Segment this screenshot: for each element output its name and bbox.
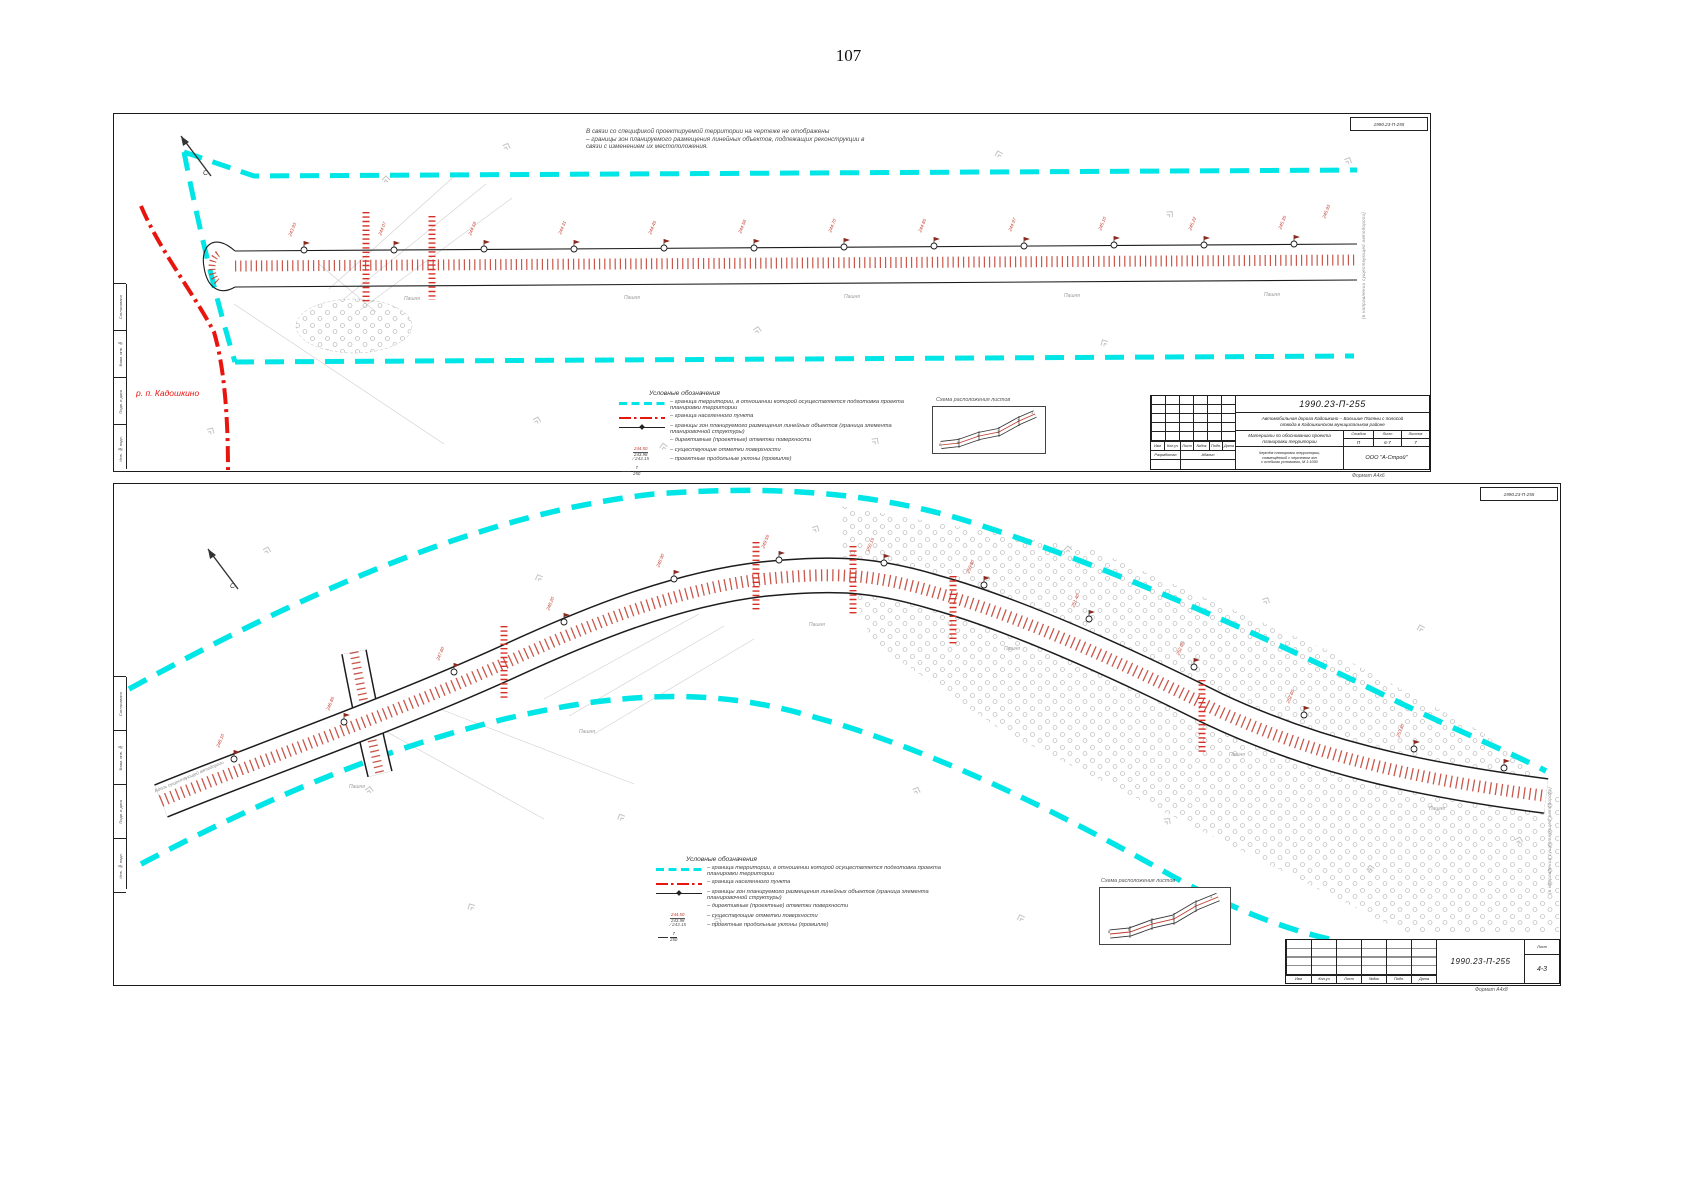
tb-role-empty — [1151, 459, 1180, 469]
settlement-boundary-line — [141, 206, 228, 470]
existing-features-lines — [234, 172, 512, 444]
direction-label-right: (в направлении существующей автодороги) — [1361, 209, 1366, 319]
road-corridor — [161, 542, 1546, 801]
tb-sheet-caption: Чертёж планировки территории, совмещённы… — [1235, 446, 1343, 469]
tb-project-name: Автомобильная дорога Кадошкино – Большие… — [1235, 412, 1429, 430]
legend-swatch-boundary — [619, 399, 665, 407]
title-block-sheet1: Изм Кол.уч Лист №док Подп. Дата Разработ… — [1150, 395, 1430, 470]
page-number: 107 — [0, 46, 1697, 66]
stamp-inv-replace: Взам. инв. № — [118, 341, 123, 367]
legend-item: 7250– проектные продольные уклоны (проми… — [656, 922, 986, 930]
tb-role-name: Абанин — [1180, 450, 1235, 459]
tb-col-koluch: Кол.уч — [1311, 975, 1336, 983]
elevation-label: 253.10 — [1395, 723, 1405, 738]
vegetation-area — [296, 299, 412, 353]
elevation-label: 244.97 — [1007, 217, 1017, 232]
legend-item: – границы зон планируемого размещения ли… — [656, 889, 986, 902]
tb-sheet-label: Лист — [1524, 940, 1559, 954]
station-markers — [301, 235, 1300, 253]
legend-swatch-settlement — [619, 413, 665, 421]
tb-organization: ООО "А-Строй" — [1343, 446, 1429, 469]
scheme-diagram — [933, 407, 1045, 453]
tb-doc-title: Материалы по обоснованию проекта планиро… — [1235, 430, 1343, 446]
legend-item: – граница населенного пункта — [619, 413, 949, 421]
tb-col-izm: Изм — [1286, 975, 1311, 983]
legend-sample-slope: 7250 — [670, 932, 677, 942]
elevation-label: 246.10 — [215, 733, 225, 748]
tb-col-data: Дата — [1222, 441, 1235, 450]
stamp-approved: Согласовано — [118, 295, 123, 319]
legend-title: Условные обозначения — [686, 856, 986, 863]
tb-role-label: Разработал — [1151, 450, 1180, 459]
elevation-label: 244.70 — [827, 218, 837, 233]
scheme-title: Схема расположения листов — [1101, 878, 1175, 884]
side-stamp-column: Согласовано Взам. инв. № Подп. и дата Ин… — [114, 284, 127, 469]
elevation-label: 252.60 — [1285, 689, 1295, 704]
legend-item: – границы зон планируемого размещения ли… — [619, 423, 949, 436]
legend-item: 7250– проектные продольные уклоны (проми… — [619, 456, 949, 464]
elevation-label: 244.45 — [647, 220, 657, 235]
elevation-label: 245.35 — [1277, 215, 1287, 230]
elevation-label: 244.18 — [467, 221, 477, 236]
settlement-label: р. п. Кадошкино — [136, 388, 199, 398]
format-label-sheet2: Формат А4х8 — [1475, 987, 1508, 993]
legend-swatch-linear — [619, 423, 665, 431]
elevation-label: 246.85 — [325, 696, 335, 711]
tb-col-list: Лист — [1180, 441, 1193, 450]
station-markers — [231, 551, 1510, 771]
elevation-label: 243.93 — [287, 222, 297, 237]
stamp-sign-date: Подп. и дата — [118, 390, 123, 414]
stamp-inv-replace: Взам. инв. № — [118, 745, 123, 771]
landuse-label: Пашня — [1004, 646, 1020, 652]
tb-col-ndok: №док — [1361, 975, 1386, 983]
tb-col-ndok: №док — [1193, 441, 1209, 450]
note-line: – границы зон планируемого размещения ли… — [586, 136, 926, 144]
elevation-label: 251.40 — [1070, 593, 1080, 608]
legend-swatch-settlement — [656, 879, 702, 887]
along-road-label: Вдоль существующей автодороги — [154, 760, 224, 794]
scheme-title: Схема расположения листов — [936, 397, 1010, 403]
format-label-sheet1: Формат А4х6 — [1352, 473, 1385, 479]
tb-col-podp: Подп. — [1386, 975, 1411, 983]
elevation-label: 244.31 — [557, 220, 567, 235]
corner-doc-number: 1990.23-П-255 — [1480, 487, 1558, 501]
landuse-label: Пашня — [1429, 806, 1445, 812]
legend-item: 244.50243.98– директивные (проектные) от… — [619, 437, 949, 445]
intersection-road — [354, 652, 380, 774]
legend-sheet1: Условные обозначения – граница территори… — [619, 390, 949, 466]
road-corridor — [203, 212, 1357, 304]
landuse-label: Пашня — [809, 622, 825, 628]
landuse-label: Пашня — [1229, 752, 1245, 758]
north-arrow: С — [196, 539, 248, 597]
drawing-sheet-1: С В связи со спецификой проектируемой те… — [113, 113, 1431, 472]
legend-swatch-boundary — [656, 865, 702, 873]
elevation-label: 249.55 — [760, 534, 770, 549]
legend-item: – граница территории, в отношении которо… — [656, 865, 986, 878]
legend-sample-slope: 7250 — [633, 466, 640, 476]
elevation-label: 244.07 — [377, 221, 387, 236]
legend-item: ⁄ 243.15– существующие отметки поверхнос… — [619, 447, 949, 455]
elevation-label: 248.90 — [655, 553, 665, 568]
landuse-label: Пашня — [579, 729, 595, 735]
existing-features-lines — [369, 614, 754, 819]
title-block-sheet2: Изм Кол.уч Лист №док Подп. Дата 1990.23-… — [1285, 939, 1560, 984]
drawing-sheet-2: С Вдоль существующей автодороги (в напра… — [113, 483, 1561, 986]
legend-swatch-linear — [656, 889, 702, 897]
scheme-box: 654321 — [932, 406, 1046, 454]
stamp-inv-orig: Инв. № подл. — [118, 436, 123, 462]
landuse-label: Пашня — [404, 296, 420, 302]
legend-item: – граница территории, в отношении которо… — [619, 399, 949, 412]
legend-item: – граница населенного пункта — [656, 879, 986, 887]
elevation-label: 250.15 — [865, 537, 875, 552]
project-boundary-line — [184, 152, 1357, 362]
tb-col-izm: Изм — [1151, 441, 1164, 450]
direction-label-right: (в направлении существующей автодороги) — [1547, 779, 1552, 894]
elevation-label: 245.10 — [1097, 216, 1107, 231]
tb-col-koluch: Кол.уч — [1164, 441, 1180, 450]
note-line: В связи со спецификой проектируемой терр… — [586, 128, 926, 136]
north-label: С — [230, 583, 235, 590]
landuse-label: Пашня — [844, 294, 860, 300]
elevation-label: 250.80 — [965, 559, 975, 574]
tb-sheet-value: 6-7 — [1373, 438, 1401, 446]
tb-stage-label: Стадия — [1343, 430, 1373, 438]
elevation-label: 244.58 — [737, 219, 747, 234]
note-line: связи с изменением их местоположения. — [586, 143, 926, 151]
north-label: С — [203, 170, 208, 177]
legend-sheet2: Условные обозначения – граница территори… — [656, 856, 986, 932]
elevation-label: 245.22 — [1187, 216, 1197, 231]
landuse-label: Пашня — [624, 295, 640, 301]
scheme-diagram — [1100, 888, 1230, 944]
legend-title: Условные обозначения — [649, 390, 949, 397]
north-arrow: С — [169, 126, 221, 184]
elevation-label: 252.05 — [1175, 641, 1185, 656]
stamp-inv-orig: Инв. № подл. — [118, 853, 123, 879]
tb-col-data: Дата — [1411, 975, 1436, 983]
scheme-box: 654321 — [1099, 887, 1231, 945]
elevation-label: 247.60 — [435, 646, 445, 661]
landuse-label: Пашня — [349, 784, 365, 790]
stamp-approved: Согласовано — [118, 692, 123, 716]
elevation-label: 248.20 — [545, 596, 555, 611]
tb-sheets-label: Листов — [1401, 430, 1429, 438]
tb-sheets-value: 7 — [1401, 438, 1429, 446]
tb-sheet-value: 4-3 — [1524, 954, 1559, 983]
corner-doc-number: 1990.23-П-255 — [1350, 117, 1428, 131]
stamp-sign-date: Подп. и дата — [118, 800, 123, 824]
landuse-label: Пашня — [1264, 292, 1280, 298]
legend-item: 244.50243.98– директивные (проектные) от… — [656, 903, 986, 911]
tb-col-podp: Подп. — [1209, 441, 1222, 450]
legend-item: ⁄ 243.15– существующие отметки поверхнос… — [656, 913, 986, 921]
tb-doc-number: 1990.23-П-255 — [1235, 396, 1429, 412]
tb-col-list: Лист — [1336, 975, 1361, 983]
document-page: { "page": {"number": "107"}, "colors": {… — [0, 0, 1697, 1200]
tb-doc-number: 1990.23-П-255 — [1436, 940, 1524, 983]
tb-role-empty2 — [1180, 459, 1235, 469]
side-stamp-column: Согласовано Взам. инв. № Подп. и дата Ин… — [114, 677, 127, 889]
elevation-label: 244.85 — [917, 218, 927, 233]
sheet1-note: В связи со спецификой проектируемой терр… — [586, 128, 926, 151]
tb-stage-value: П — [1343, 438, 1373, 446]
tb-sheet-label: Лист — [1373, 430, 1401, 438]
landuse-label: Пашня — [1064, 293, 1080, 299]
elevation-label: 245.93 — [1321, 204, 1331, 219]
